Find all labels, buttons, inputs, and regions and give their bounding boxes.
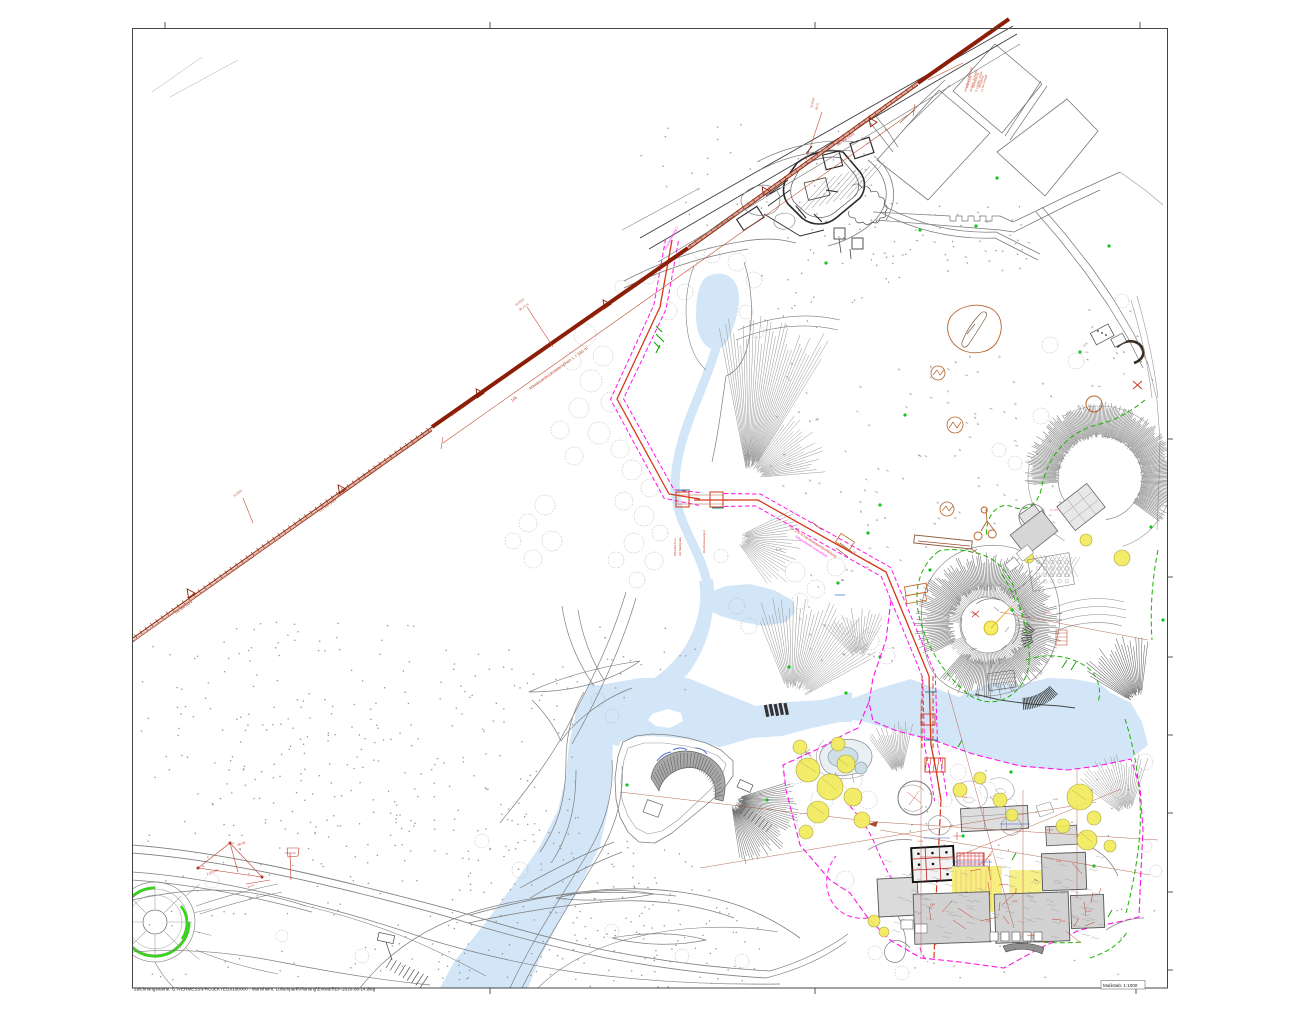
svg-text:Zeichnungsname: G:\VERMESS\PRO: Zeichnungsname: G:\VERMESS\PROJEKTE\2019… (134, 987, 376, 992)
svg-text:x.xx: x.xx (1012, 899, 1018, 903)
svg-text:x.xx: x.xx (1060, 919, 1066, 923)
svg-text:Maßstab: 1:1000: Maßstab: 1:1000 (1103, 983, 1138, 988)
svg-text:mit Startgrube: mit Startgrube (678, 537, 682, 556)
svg-text:x.xx: x.xx (1056, 859, 1062, 863)
svg-text:x.xx: x.xx (1086, 909, 1092, 913)
svg-text:x.xx: x.xx (986, 919, 992, 923)
svg-text:x.xx: x.xx (1053, 797, 1059, 801)
svg-text:Schacht D.I.L.: Schacht D.I.L. (673, 537, 677, 556)
svg-text:x.xx: x.xx (930, 902, 936, 906)
svg-text:x.xx: x.xx (943, 867, 949, 871)
svg-text:Durchpressung 2: Durchpressung 2 (702, 530, 706, 553)
svg-text:Nr.223: Nr.223 (1043, 611, 1052, 615)
svg-text:Nr.201: Nr.201 (1050, 508, 1059, 512)
svg-text:x.xx: x.xx (918, 839, 924, 843)
